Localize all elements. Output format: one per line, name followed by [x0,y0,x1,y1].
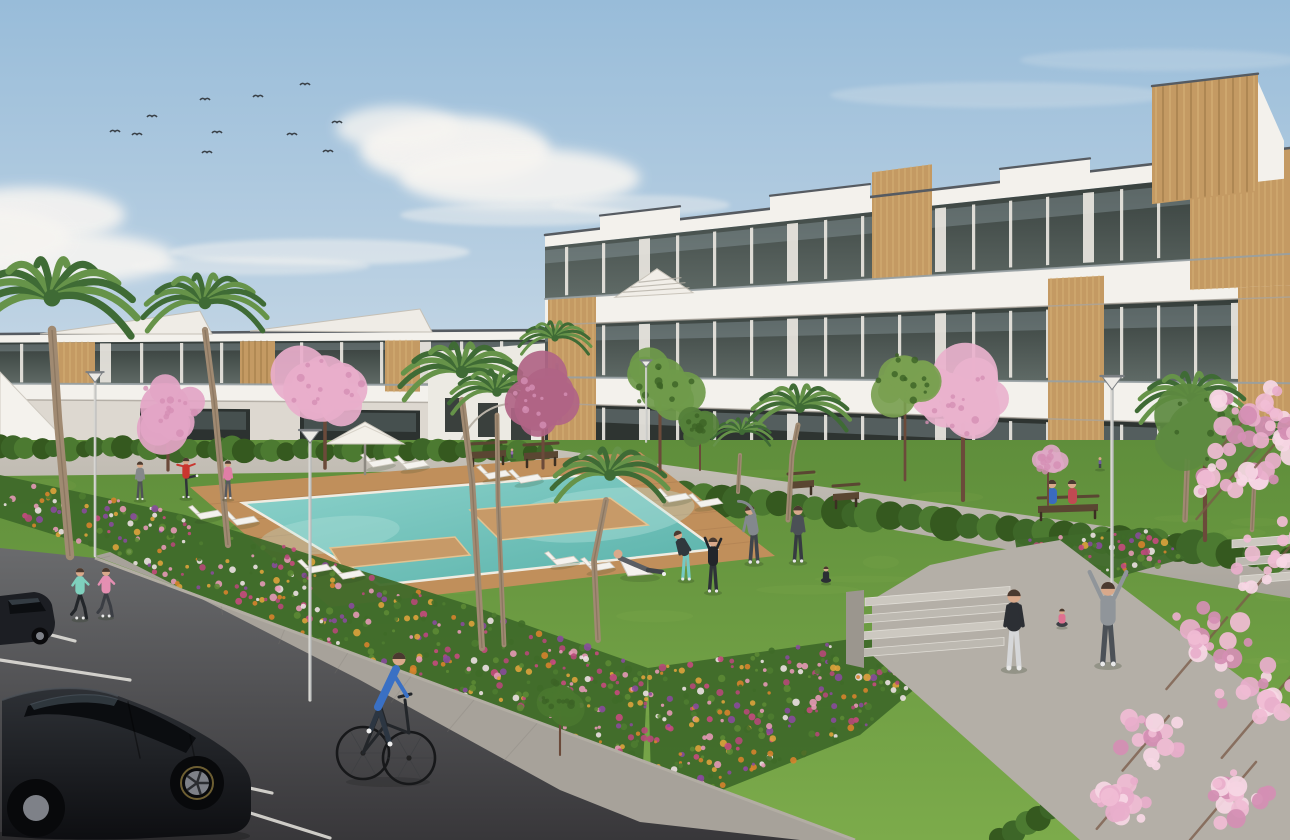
render-viewport [0,0,1290,840]
residential-complex-render [0,0,1290,840]
